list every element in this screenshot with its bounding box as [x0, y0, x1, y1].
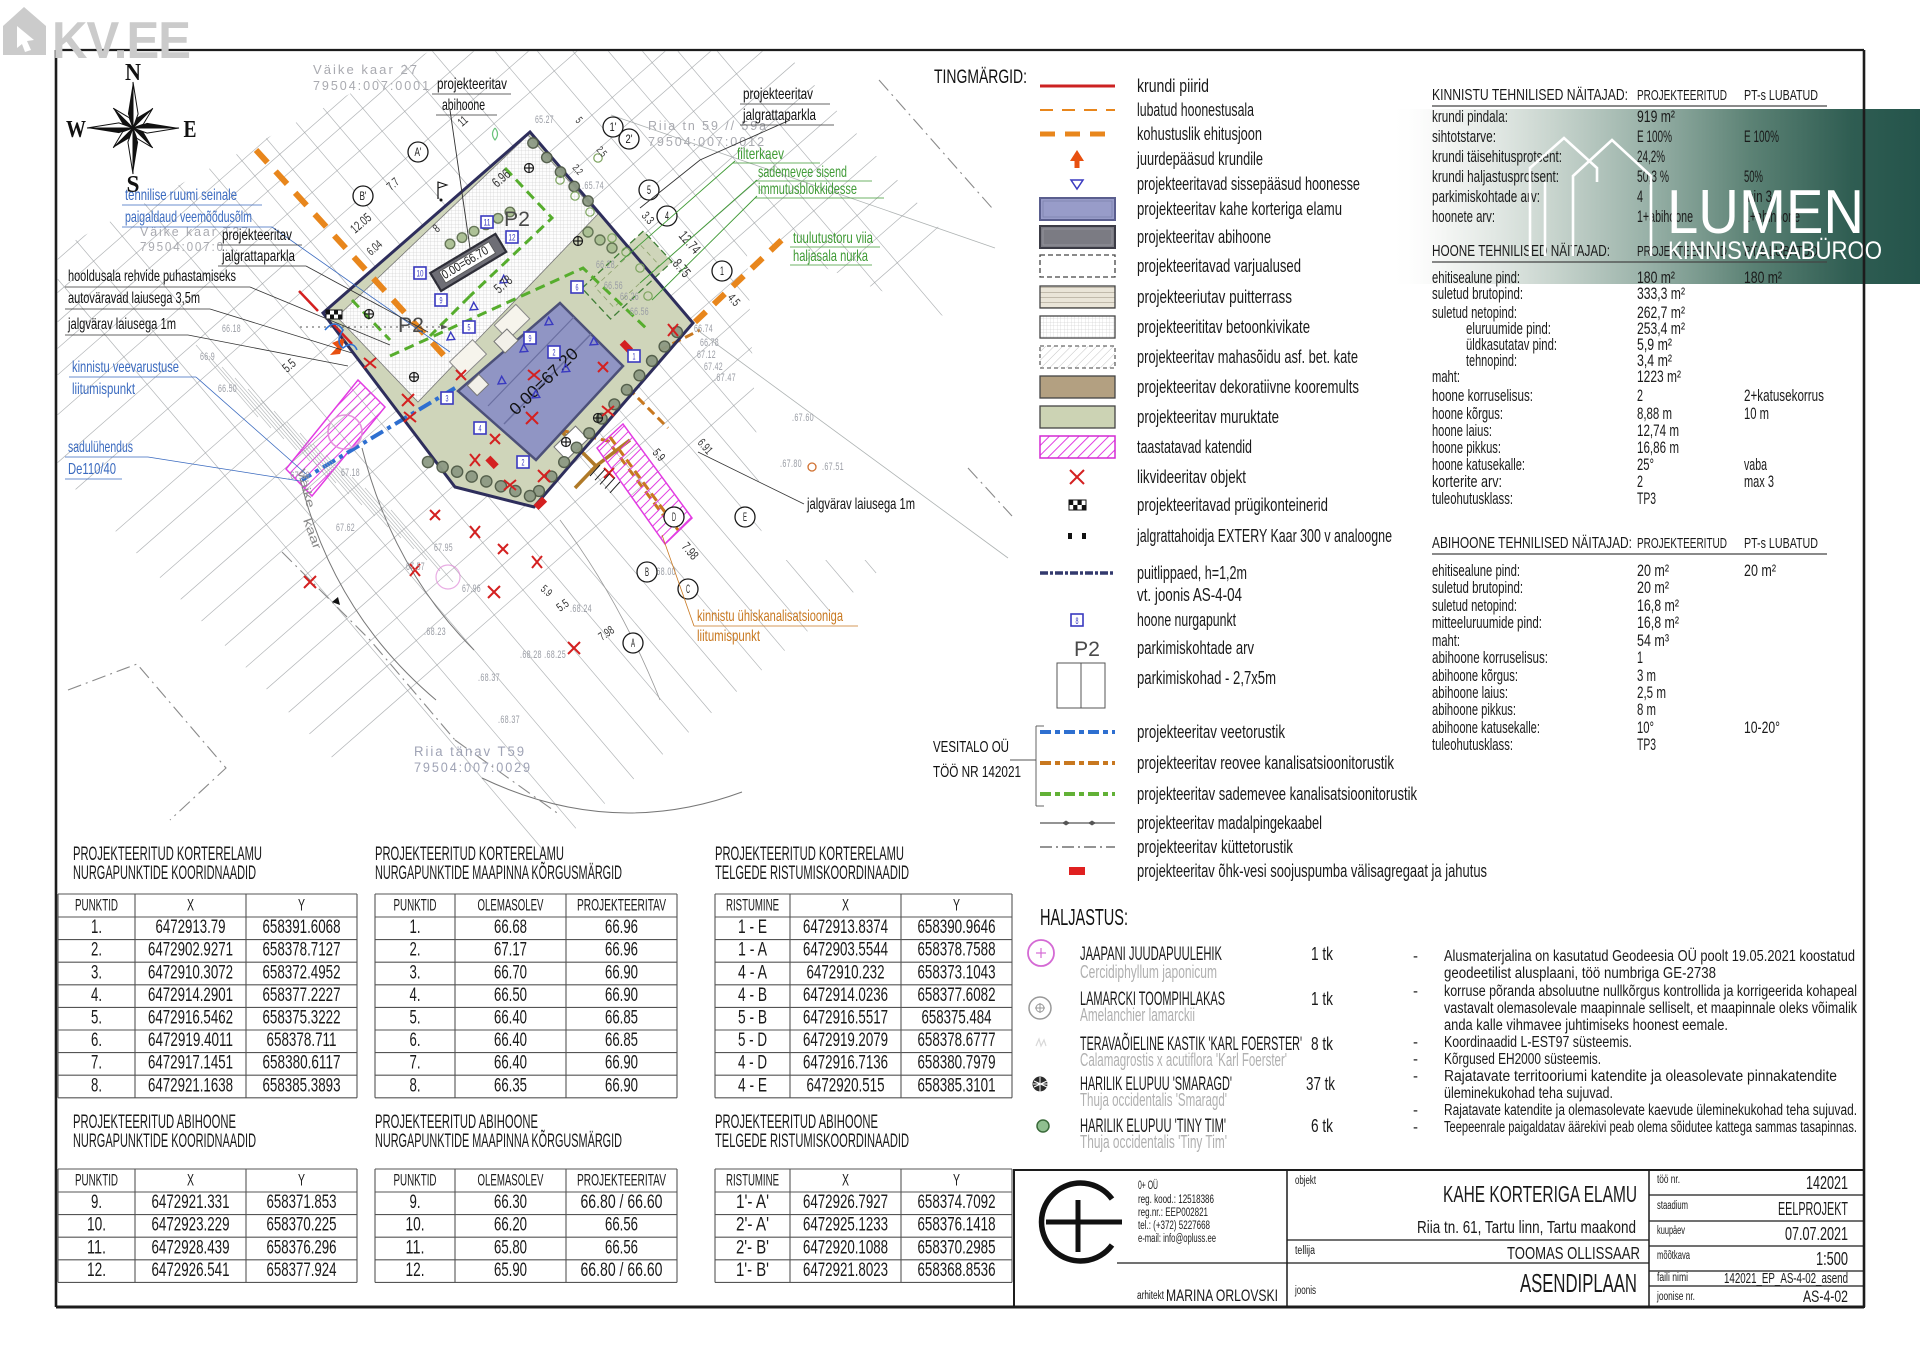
svg-text:jalgrattahoidja EXTERY Kaar 30: jalgrattahoidja EXTERY Kaar 300 v analoo…	[1136, 525, 1392, 546]
svg-text:66.70: 66.70	[494, 962, 527, 983]
svg-text:658385.3101: 658385.3101	[918, 1075, 996, 1096]
svg-text:65.80: 65.80	[494, 1237, 527, 1258]
svg-text:korruse põranda absoluutne nul: korruse põranda absoluutne nullkõrgus ko…	[1444, 983, 1857, 1000]
svg-text:6472910.3072: 6472910.3072	[148, 962, 233, 983]
svg-text:projekteeritavad sissepääsud h: projekteeritavad sissepääsud hoonesse	[1137, 173, 1360, 194]
svg-text:reg. kood.: 12518386: reg. kood.: 12518386	[1138, 1194, 1214, 1206]
svg-text:16,86 m: 16,86 m	[1637, 439, 1679, 457]
svg-text:1:500: 1:500	[1816, 1249, 1848, 1269]
svg-text:lubatud hoonestusala: lubatud hoonestusala	[1137, 99, 1254, 120]
svg-text:jalgrattaparkla: jalgrattaparkla	[221, 248, 295, 265]
svg-text:D: D	[672, 512, 676, 524]
svg-text:24,2%: 24,2%	[1637, 148, 1665, 166]
svg-text:PUNKTID: PUNKTID	[75, 896, 118, 915]
svg-text:2: 2	[522, 458, 525, 468]
svg-text:1'- A': 1'- A'	[736, 1192, 769, 1213]
svg-text:658370.2985: 658370.2985	[918, 1237, 996, 1258]
svg-text:hoone katusekalle:: hoone katusekalle:	[1432, 456, 1525, 474]
svg-text:vastavalt olemasolevale maapin: vastavalt olemasolevale maapinnale selli…	[1444, 1000, 1857, 1017]
svg-text:4.: 4.	[91, 985, 102, 1006]
svg-text:9.: 9.	[91, 1192, 102, 1213]
svg-text:4: 4	[665, 211, 669, 223]
svg-text:6472913.8374: 6472913.8374	[803, 917, 888, 938]
svg-text:mõõtkava: mõõtkava	[1657, 1250, 1690, 1262]
svg-text:66.18: 66.18	[222, 323, 241, 335]
svg-text:6472916.5462: 6472916.5462	[148, 1008, 233, 1029]
svg-text:üleminekukohad teha sujuvad.: üleminekukohad teha sujuvad.	[1444, 1085, 1613, 1102]
svg-text:projekteeritav veetorustik: projekteeritav veetorustik	[1137, 721, 1286, 742]
svg-text:9: 9	[440, 296, 443, 306]
svg-text:max 3: max 3	[1744, 473, 1774, 491]
svg-text:12.: 12.	[87, 1260, 106, 1281]
svg-text:KINNISTU TEHNILISED NÄITAJAD:: KINNISTU TEHNILISED NÄITAJAD:	[1432, 87, 1628, 104]
svg-text:5: 5	[647, 185, 651, 197]
svg-text:PUNKTID: PUNKTID	[394, 1171, 437, 1190]
svg-text:0+ OÜ: 0+ OÜ	[1138, 1180, 1158, 1192]
svg-text:2.: 2.	[91, 940, 102, 961]
svg-text:658377.6082: 658377.6082	[918, 985, 996, 1006]
svg-text:krundi haljastusprotsent:: krundi haljastusprotsent:	[1432, 168, 1559, 186]
svg-text:projekteeritavad prügikonteine: projekteeritavad prügikonteinerid	[1137, 494, 1328, 515]
svg-text:66.56: 66.56	[605, 1215, 638, 1236]
svg-text:faili nimi: faili nimi	[1657, 1272, 1688, 1284]
svg-text:autoväravad laiusega 3,5m: autoväravad laiusega 3,5m	[68, 290, 200, 307]
svg-text:X: X	[842, 1171, 849, 1190]
svg-text:Amelanchier lamarckii: Amelanchier lamarckii	[1080, 1005, 1195, 1025]
svg-text:suletud brutopind:: suletud brutopind:	[1432, 285, 1523, 303]
svg-text:2'- A': 2'- A'	[736, 1215, 769, 1236]
svg-text:P2: P2	[1074, 638, 1100, 661]
svg-text:projekteeriutav puitterrass: projekteeriutav puitterrass	[1137, 286, 1292, 307]
svg-text:66.85: 66.85	[605, 1030, 638, 1051]
svg-text:hoonete arv:: hoonete arv:	[1432, 208, 1495, 226]
svg-text:A': A'	[415, 147, 422, 159]
svg-text:KV.EE: KV.EE	[52, 12, 190, 70]
svg-text:-: -	[1413, 1068, 1418, 1085]
svg-text:liitumispunkt: liitumispunkt	[697, 628, 760, 645]
svg-text:67.18: 67.18	[341, 467, 360, 479]
svg-text:6472910.232: 6472910.232	[807, 962, 885, 983]
svg-text:66.40: 66.40	[494, 1053, 527, 1074]
svg-text:6472914.2901: 6472914.2901	[148, 985, 233, 1006]
svg-text:66.90: 66.90	[605, 1053, 638, 1074]
svg-text:abihoone katusekalle:: abihoone katusekalle:	[1432, 719, 1540, 737]
svg-text:2: 2	[1637, 387, 1643, 405]
svg-text:krundi pindala:: krundi pindala:	[1432, 108, 1508, 126]
svg-text:parkimiskohad - 2,7x5m: parkimiskohad - 2,7x5m	[1137, 667, 1276, 688]
svg-text:NURGAPUNKTIDE KOORIDNAADID: NURGAPUNKTIDE KOORIDNAADID	[73, 862, 256, 884]
svg-text:PT-s LUBATUD: PT-s LUBATUD	[1744, 88, 1818, 104]
svg-text:PROJEKTEERITAV: PROJEKTEERITAV	[577, 896, 666, 915]
svg-text:PUNKTID: PUNKTID	[75, 1171, 118, 1190]
svg-text:C: C	[686, 584, 690, 596]
svg-text:TP3: TP3	[1637, 736, 1656, 754]
svg-text:658376.1418: 658376.1418	[918, 1215, 996, 1236]
svg-text:arhitekt: arhitekt	[1137, 1290, 1165, 1302]
svg-text:mitteeluruumide pind:: mitteeluruumide pind:	[1432, 614, 1542, 632]
svg-text:3.: 3.	[91, 962, 102, 983]
svg-text:projekteeritav muruktate: projekteeritav muruktate	[1137, 406, 1279, 427]
svg-text:1': 1'	[610, 122, 617, 134]
svg-text:.65.74: .65.74	[582, 180, 604, 192]
svg-text:parkimiskohtade arv:: parkimiskohtade arv:	[1432, 188, 1540, 206]
svg-text:objekt: objekt	[1295, 1175, 1317, 1187]
svg-text:E 100%: E 100%	[1637, 128, 1672, 146]
svg-text:P2: P2	[504, 208, 530, 231]
svg-text:abihoone korruselisus:: abihoone korruselisus:	[1432, 649, 1548, 667]
svg-text:kinnistu ühiskanalisatsiooniga: kinnistu ühiskanalisatsiooniga	[697, 608, 843, 625]
svg-text:5 - B: 5 - B	[738, 1008, 767, 1029]
svg-text:6472921.1638: 6472921.1638	[148, 1075, 233, 1096]
svg-text:66.30: 66.30	[494, 1192, 527, 1213]
svg-text:10: 10	[417, 269, 424, 279]
svg-text:Cercidiphyllum japonicum: Cercidiphyllum japonicum	[1080, 962, 1217, 982]
svg-text:66.56: 66.56	[605, 1237, 638, 1258]
svg-text:kuupäev: kuupäev	[1657, 1225, 1685, 1237]
svg-text:B: B	[645, 567, 649, 579]
svg-text:1: 1	[633, 352, 636, 362]
svg-text:658378.7127: 658378.7127	[263, 940, 341, 961]
svg-text:79504:007:0001: 79504:007:0001	[313, 78, 431, 93]
svg-text:Thuja occidentalis 'Tiny Tim': Thuja occidentalis 'Tiny Tim'	[1080, 1132, 1227, 1152]
svg-text:vt. joonis AS-4-04: vt. joonis AS-4-04	[1137, 584, 1242, 605]
svg-text:658375.484: 658375.484	[922, 1008, 992, 1029]
svg-text:3 m: 3 m	[1637, 667, 1656, 685]
svg-text:E: E	[743, 512, 747, 524]
svg-text:PUNKTID: PUNKTID	[394, 896, 437, 915]
svg-text:NURGAPUNKTIDE MAAPINNA KÕRGUSM: NURGAPUNKTIDE MAAPINNA KÕRGUSMÄRGID	[375, 860, 622, 884]
svg-text:66.35: 66.35	[494, 1075, 527, 1096]
svg-text:67.96: 67.96	[462, 583, 481, 595]
svg-text:12: 12	[509, 233, 516, 243]
svg-text:4 - E: 4 - E	[738, 1075, 767, 1096]
svg-text:AS-4-02: AS-4-02	[1803, 1287, 1848, 1306]
svg-text:.68.37: .68.37	[498, 714, 520, 726]
svg-text:1 - E: 1 - E	[738, 917, 767, 938]
svg-text:HOONE TEHNILISED NÄITAJAD:: HOONE TEHNILISED NÄITAJAD:	[1432, 243, 1610, 260]
svg-text:658374.7092: 658374.7092	[918, 1192, 996, 1213]
svg-text:tel.: (+372) 5227668: tel.: (+372) 5227668	[1138, 1220, 1210, 1232]
svg-text:PROJEKTEERITUD: PROJEKTEERITUD	[1637, 536, 1727, 552]
svg-text:De110/40: De110/40	[68, 461, 116, 478]
svg-text:4.: 4.	[410, 985, 421, 1006]
svg-text:projekteeritav madalpingekaabe: projekteeritav madalpingekaabel	[1137, 812, 1322, 833]
svg-text:66.56: 66.56	[630, 306, 649, 318]
svg-text:Alusmaterjalina on kasutatud G: Alusmaterjalina on kasutatud Geodeesia O…	[1444, 947, 1855, 965]
svg-text:6 tk: 6 tk	[1311, 1116, 1334, 1136]
svg-text:OLEMASOLEV: OLEMASOLEV	[478, 896, 544, 915]
svg-text:joonis: joonis	[1294, 1285, 1316, 1297]
svg-text:immutusblokkidesse: immutusblokkidesse	[758, 181, 857, 198]
svg-text:6472926.541: 6472926.541	[152, 1260, 230, 1281]
svg-text:krundi piirid: krundi piirid	[1137, 75, 1209, 96]
svg-text:-: -	[1413, 1051, 1418, 1068]
svg-text:6472921.8023: 6472921.8023	[803, 1260, 888, 1281]
svg-text:sadulühendus: sadulühendus	[68, 439, 133, 456]
svg-text:tuleohutusklass:: tuleohutusklass:	[1432, 490, 1513, 508]
svg-text:projekteeritav õhk-vesi soojus: projekteeritav õhk-vesi soojuspumba väli…	[1137, 860, 1487, 881]
svg-text:hoone pikkus:: hoone pikkus:	[1432, 439, 1501, 457]
svg-text:1 - A: 1 - A	[738, 940, 767, 961]
svg-text:66.50: 66.50	[494, 985, 527, 1006]
svg-text:4 - B: 4 - B	[738, 985, 767, 1006]
svg-text:Teepeenrale paigaldatav ääreki: Teepeenrale paigaldatav äärekivi peab ol…	[1444, 1119, 1857, 1136]
svg-text:OLEMASOLEV: OLEMASOLEV	[478, 1171, 544, 1190]
svg-text:1 tk: 1 tk	[1311, 989, 1334, 1009]
svg-text:ABIHOONE TEHNILISED NÄITAJAD:: ABIHOONE TEHNILISED NÄITAJAD:	[1432, 535, 1632, 552]
svg-text:töö nr.: töö nr.	[1657, 1174, 1680, 1186]
svg-text:ASENDIPLAAN: ASENDIPLAAN	[1520, 1268, 1637, 1298]
svg-text:3.: 3.	[410, 962, 421, 983]
svg-text:suletud netopind:: suletud netopind:	[1432, 597, 1517, 615]
svg-text:maht:: maht:	[1432, 632, 1460, 650]
svg-text:hoone laius:: hoone laius:	[1432, 422, 1492, 440]
svg-text:658380.6117: 658380.6117	[263, 1053, 341, 1074]
svg-text:maht:: maht:	[1432, 368, 1460, 386]
svg-text:8.: 8.	[410, 1075, 421, 1096]
svg-text:.68.37: .68.37	[478, 672, 500, 684]
svg-text:11: 11	[484, 218, 491, 228]
svg-text:-: -	[1413, 1119, 1418, 1136]
svg-text:2.: 2.	[410, 940, 421, 961]
svg-text:parkimiskohtade arv: parkimiskohtade arv	[1137, 637, 1255, 658]
svg-text:2+katusekorrus: 2+katusekorrus	[1744, 387, 1824, 405]
svg-text:20 m²: 20 m²	[1637, 579, 1669, 597]
svg-text:65.27: 65.27	[535, 114, 554, 126]
svg-text:658378.6777: 658378.6777	[918, 1030, 996, 1051]
svg-text:hooldusala rehvide puhastamise: hooldusala rehvide puhastamiseks	[68, 268, 236, 285]
svg-text:KAHE KORTERIGA ELAMU: KAHE KORTERIGA ELAMU	[1443, 1181, 1637, 1207]
svg-text:projekteeritav kahe korteriga: projekteeritav kahe korteriga elamu	[1137, 198, 1342, 219]
svg-text:.68.28 .68.25: .68.28 .68.25	[520, 649, 566, 661]
svg-text:abihoone pikkus:: abihoone pikkus:	[1432, 701, 1516, 719]
svg-text:RISTUMINE: RISTUMINE	[726, 896, 779, 915]
svg-text:4 - A: 4 - A	[738, 962, 767, 983]
svg-text:Koordinaadid L-EST97 süsteemis: Koordinaadid L-EST97 süsteemis.	[1444, 1034, 1632, 1051]
svg-text:projekteeritav sademevee kanal: projekteeritav sademevee kanalisatsiooni…	[1137, 783, 1418, 804]
svg-text:12.: 12.	[406, 1260, 425, 1281]
svg-text:6472926.7927: 6472926.7927	[803, 1192, 888, 1213]
svg-text:6472920.1088: 6472920.1088	[803, 1237, 888, 1258]
svg-text:NURGAPUNKTIDE KOORIDNAADID: NURGAPUNKTIDE KOORIDNAADID	[73, 1130, 256, 1152]
svg-text:hoone kõrgus:: hoone kõrgus:	[1432, 405, 1503, 423]
svg-text:12,74 m: 12,74 m	[1637, 422, 1679, 440]
svg-text:67.17: 67.17	[494, 940, 527, 961]
svg-text:919 m²: 919 m²	[1637, 108, 1675, 126]
svg-text:jalgvärav laiusega 1m: jalgvärav laiusega 1m	[806, 496, 915, 513]
svg-text:S: S	[127, 172, 140, 198]
svg-text:Y: Y	[953, 896, 960, 915]
svg-text:10.: 10.	[87, 1215, 106, 1236]
svg-text:TOOMAS OLLISSAAR: TOOMAS OLLISSAAR	[1507, 1243, 1640, 1263]
svg-text:1: 1	[720, 266, 724, 278]
svg-text:5.: 5.	[91, 1008, 102, 1029]
svg-text:6472921.331: 6472921.331	[152, 1192, 230, 1213]
svg-text:658375.3222: 658375.3222	[263, 1008, 341, 1029]
svg-text:66.68: 66.68	[494, 917, 527, 938]
svg-text:korterite arv:: korterite arv:	[1432, 473, 1502, 491]
svg-text:projekteeritav küttetorustik: projekteeritav küttetorustik	[1137, 836, 1294, 857]
svg-text:658377.924: 658377.924	[267, 1260, 337, 1281]
svg-text:Y: Y	[298, 896, 305, 915]
svg-text:juurdepääsud krundile: juurdepääsud krundile	[1136, 148, 1263, 169]
svg-text:ehitisealune pind:: ehitisealune pind:	[1432, 562, 1520, 580]
svg-text:50,3 %: 50,3 %	[1637, 168, 1669, 186]
svg-text:6472916.5517: 6472916.5517	[803, 1008, 888, 1029]
svg-text:X: X	[187, 896, 194, 915]
svg-text:6472920.515: 6472920.515	[807, 1075, 885, 1096]
svg-text:6472913.79: 6472913.79	[156, 917, 226, 938]
svg-text:1.: 1.	[410, 917, 421, 938]
svg-text:66.78: 66.78	[700, 337, 719, 349]
svg-text:.67.39: .67.39	[288, 470, 310, 482]
svg-text:PT-s LUBATUD: PT-s LUBATUD	[1744, 536, 1818, 552]
svg-text:66.85: 66.85	[605, 1008, 638, 1029]
svg-text:tehnilise ruumi seinale: tehnilise ruumi seinale	[125, 187, 237, 204]
svg-text:MARINA ORLOVSKI: MARINA ORLOVSKI	[1166, 1286, 1278, 1305]
svg-text:6472925.1233: 6472925.1233	[803, 1215, 888, 1236]
svg-text:liitumispunkt: liitumispunkt	[72, 381, 135, 398]
svg-text:8 tk: 8 tk	[1311, 1034, 1334, 1054]
svg-text:20 m²: 20 m²	[1637, 562, 1669, 580]
svg-text:RISTUMINE: RISTUMINE	[726, 1171, 779, 1190]
svg-text:TINGMÄRGID:: TINGMÄRGID:	[934, 66, 1027, 88]
svg-text:projekteeritav: projekteeritav	[743, 86, 813, 103]
svg-text:-: -	[1413, 983, 1418, 1000]
svg-text:kinnistu veevarustuse: kinnistu veevarustuse	[72, 359, 179, 376]
svg-text:W: W	[66, 117, 86, 143]
svg-text:haljasala nurka: haljasala nurka	[793, 248, 868, 265]
svg-text:sademevee sisend: sademevee sisend	[758, 164, 847, 181]
svg-text:5 - D: 5 - D	[738, 1030, 767, 1051]
svg-text:-: -	[1413, 1102, 1418, 1119]
svg-text:10 m: 10 m	[1744, 405, 1769, 423]
svg-text:66.90: 66.90	[605, 985, 638, 1006]
svg-text:kohustuslik ehitusjoon: kohustuslik ehitusjoon	[1137, 123, 1262, 144]
svg-text:658377.2227: 658377.2227	[263, 985, 341, 1006]
svg-text:TELGEDE RISTUMISKOORDINAADID: TELGEDE RISTUMISKOORDINAADID	[715, 1130, 909, 1152]
svg-text:hoone korruselisus:: hoone korruselisus:	[1432, 387, 1533, 405]
svg-text:VESITALO OÜ: VESITALO OÜ	[933, 738, 1009, 756]
svg-text:6472919.2079: 6472919.2079	[803, 1030, 888, 1051]
svg-text:B': B'	[360, 191, 367, 203]
svg-text:333,3 m²: 333,3 m²	[1637, 285, 1685, 303]
svg-text:2'- B': 2'- B'	[736, 1237, 769, 1258]
svg-text:3: 3	[446, 394, 449, 404]
svg-text:X: X	[842, 896, 849, 915]
svg-text:X: X	[187, 1171, 194, 1190]
svg-text:66.90: 66.90	[605, 962, 638, 983]
svg-text:puitlippaed, h=1,2m: puitlippaed, h=1,2m	[1137, 562, 1247, 583]
svg-text:66.96: 66.96	[605, 940, 638, 961]
svg-text:67.57: 67.57	[406, 561, 425, 573]
svg-text:EELPROJEKT: EELPROJEKT	[1778, 1199, 1848, 1219]
svg-text:projekteeritav mahasõidu asf.: projekteeritav mahasõidu asf. bet. kate	[1137, 346, 1358, 367]
svg-text:tuulutustoru viia: tuulutustoru viia	[793, 230, 873, 247]
svg-text:142021: 142021	[1806, 1173, 1848, 1193]
svg-text:658376.296: 658376.296	[267, 1237, 337, 1258]
svg-text:abihoone laius:: abihoone laius:	[1432, 684, 1508, 702]
svg-text:6472903.5544: 6472903.5544	[803, 940, 888, 961]
svg-text:6: 6	[576, 283, 579, 293]
svg-text:Calamagrostis x acutiflora 'Ka: Calamagrostis x acutiflora 'Karl Foerste…	[1080, 1050, 1287, 1070]
svg-text:1.: 1.	[91, 917, 102, 938]
svg-text:4: 4	[1637, 188, 1643, 206]
svg-text:projekteeritav dekoratiivne ko: projekteeritav dekoratiivne kooremults	[1137, 376, 1359, 397]
svg-text:Y: Y	[953, 1171, 960, 1190]
svg-text:11.: 11.	[87, 1237, 106, 1258]
svg-text:Thuja occidentalis 'Smaragd': Thuja occidentalis 'Smaragd'	[1080, 1090, 1227, 1110]
svg-text:658372.4952: 658372.4952	[263, 962, 341, 983]
svg-text:16,8 m²: 16,8 m²	[1637, 614, 1679, 632]
svg-text:e-mail: info@opluss.ee: e-mail: info@opluss.ee	[1138, 1233, 1216, 1245]
svg-text:projekteeritav: projekteeritav	[222, 227, 292, 244]
svg-text:180 m²: 180 m²	[1744, 269, 1782, 287]
svg-text:6472914.0236: 6472914.0236	[803, 985, 888, 1006]
svg-text:142021_EP_AS-4-02_asend: 142021_EP_AS-4-02_asend	[1724, 1271, 1848, 1287]
svg-text:Riia tänav T59: Riia tänav T59	[414, 744, 526, 759]
svg-text:Y: Y	[298, 1171, 305, 1190]
svg-text:66.90: 66.90	[605, 1075, 638, 1096]
svg-text:vaba: vaba	[1744, 456, 1768, 474]
svg-text:54 m³: 54 m³	[1637, 632, 1669, 650]
svg-text:A: A	[631, 638, 635, 650]
svg-text:658380.7979: 658380.7979	[918, 1053, 996, 1074]
svg-text:suletud brutopind:: suletud brutopind:	[1432, 579, 1523, 597]
svg-text:hoone nurgapunkt: hoone nurgapunkt	[1137, 609, 1236, 630]
svg-text:25°: 25°	[1637, 456, 1654, 474]
svg-text:66.80 / 66.60: 66.80 / 66.60	[581, 1192, 663, 1213]
svg-text:geodeetilist alusplaani, töö n: geodeetilist alusplaani, töö numbriga GE…	[1444, 965, 1716, 982]
svg-text:10.: 10.	[406, 1215, 425, 1236]
svg-text:10°: 10°	[1637, 719, 1654, 737]
svg-text:Rajatavate katendite ja olemas: Rajatavate katendite ja olemasolevate ka…	[1444, 1102, 1857, 1119]
svg-text:TELGEDE RISTUMISKOORDINAADID: TELGEDE RISTUMISKOORDINAADID	[715, 862, 909, 884]
svg-text:HALJASTUS:: HALJASTUS:	[1040, 904, 1128, 930]
svg-text:1: 1	[1637, 649, 1643, 667]
svg-text:07.07.2021: 07.07.2021	[1785, 1224, 1848, 1244]
svg-text:Väike kaar 27: Väike kaar 27	[313, 62, 419, 77]
svg-text:10-20°: 10-20°	[1744, 719, 1780, 737]
svg-text:9: 9	[529, 334, 532, 344]
svg-text:filterkaev: filterkaev	[737, 146, 784, 163]
svg-text:9.: 9.	[410, 1192, 421, 1213]
svg-text:-: -	[1413, 1034, 1418, 1051]
svg-text:projekteeritav abihoone: projekteeritav abihoone	[1137, 226, 1271, 247]
svg-text:projekteerititav betoonkivikat: projekteerititav betoonkivikate	[1137, 316, 1310, 337]
svg-text:6472917.1451: 6472917.1451	[148, 1053, 233, 1074]
svg-text:66.80 / 66.60: 66.80 / 66.60	[581, 1260, 663, 1281]
svg-text:658378.7588: 658378.7588	[918, 940, 996, 961]
svg-text:66.20: 66.20	[494, 1215, 527, 1236]
svg-text:658371.853: 658371.853	[267, 1192, 337, 1213]
svg-text:5: 5	[468, 323, 471, 333]
svg-text:-: -	[1413, 948, 1418, 965]
svg-text:66.28: 66.28	[596, 259, 615, 271]
svg-text:79504:007:0029: 79504:007:0029	[414, 760, 532, 775]
svg-text:6472928.439: 6472928.439	[152, 1237, 230, 1258]
svg-text:.67.47: .67.47	[714, 372, 736, 384]
svg-text:2: 2	[553, 348, 556, 358]
svg-text:.68.23: .68.23	[424, 626, 446, 638]
svg-text:5.: 5.	[410, 1008, 421, 1029]
svg-text:8.: 8.	[91, 1075, 102, 1096]
svg-text:.67.60: .67.60	[792, 412, 814, 424]
svg-text:6472902.9271: 6472902.9271	[148, 940, 233, 961]
svg-text:658385.3893: 658385.3893	[263, 1075, 341, 1096]
svg-text:tellija: tellija	[1295, 1245, 1315, 1257]
svg-text:8: 8	[1076, 616, 1079, 626]
